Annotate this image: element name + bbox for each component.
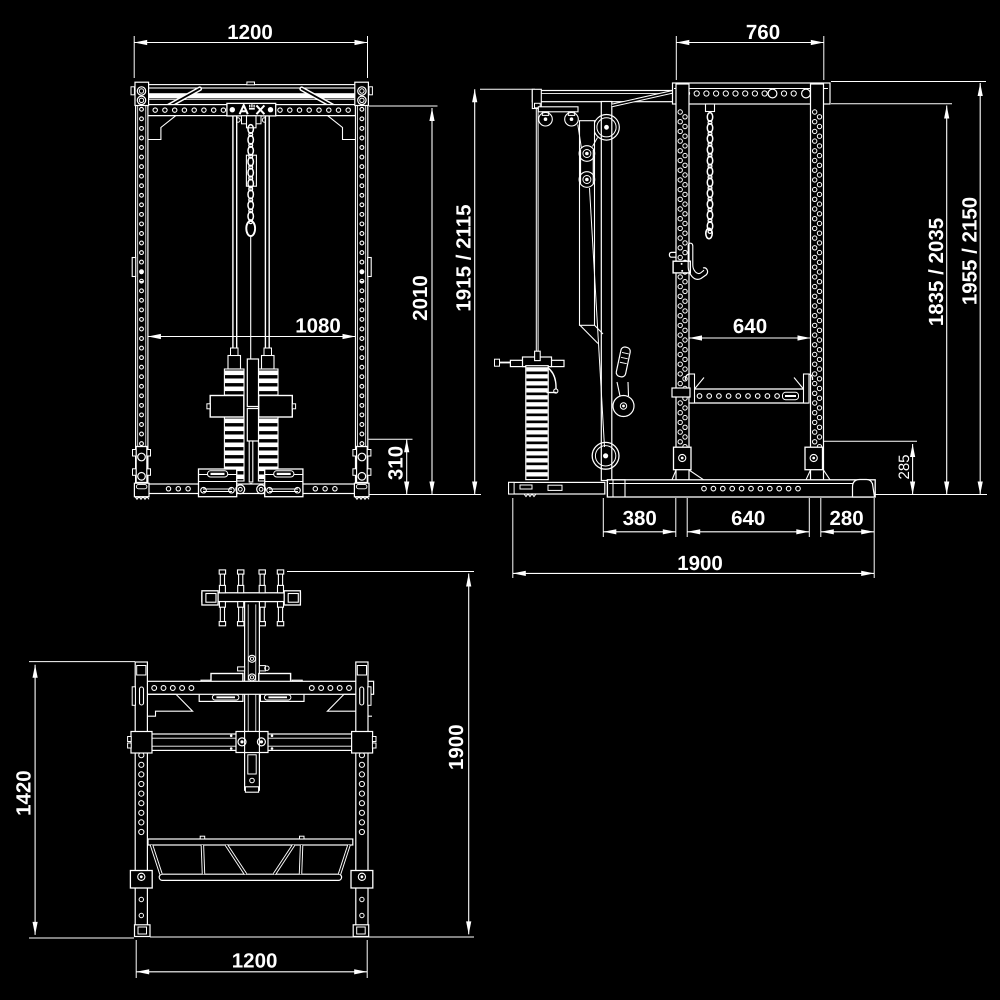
- svg-text:2010: 2010: [409, 275, 432, 321]
- svg-text:1900: 1900: [445, 724, 468, 770]
- svg-text:380: 380: [623, 507, 657, 530]
- svg-text:760: 760: [746, 21, 780, 44]
- svg-text:640: 640: [733, 315, 767, 338]
- svg-text:1900: 1900: [677, 552, 723, 575]
- svg-text:1835 / 2035: 1835 / 2035: [925, 218, 948, 326]
- svg-text:1420: 1420: [13, 770, 36, 816]
- svg-text:1200: 1200: [232, 949, 278, 972]
- svg-text:640: 640: [731, 507, 765, 530]
- svg-text:310: 310: [385, 446, 408, 480]
- svg-text:1080: 1080: [295, 314, 341, 337]
- svg-text:1200: 1200: [227, 21, 273, 44]
- svg-text:1915 / 2115: 1915 / 2115: [453, 204, 476, 311]
- svg-text:285: 285: [896, 454, 913, 479]
- svg-text:280: 280: [829, 507, 863, 530]
- svg-text:1955 / 2150: 1955 / 2150: [958, 197, 981, 305]
